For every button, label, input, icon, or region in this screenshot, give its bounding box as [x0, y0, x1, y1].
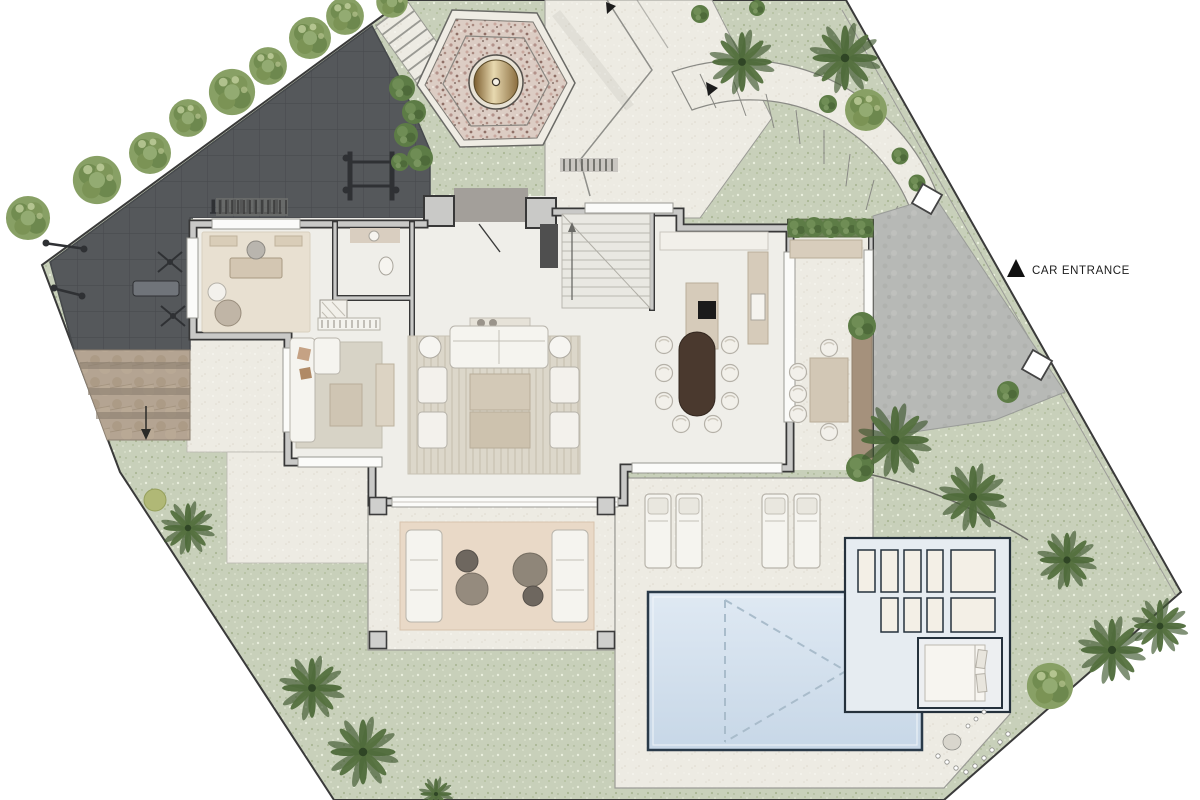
grass-tuft: [144, 489, 166, 511]
bush-icon: [391, 153, 409, 171]
round-table-small: [523, 586, 543, 606]
terrace-chair: [790, 364, 807, 381]
armchair: [550, 412, 579, 448]
house: [187, 188, 873, 507]
armchair: [550, 367, 579, 403]
bush-icon: [394, 123, 418, 147]
tree-icon: [169, 99, 207, 137]
bush-icon: [402, 100, 426, 124]
dining-chair: [656, 365, 673, 382]
tv-lounge: [290, 338, 394, 448]
outdoor-sofa-left: [406, 530, 442, 622]
outdoor-sofa-right: [552, 530, 588, 622]
kitchen-counter-north: [660, 232, 768, 250]
side-table: [549, 336, 571, 358]
cooktop: [698, 301, 716, 319]
coffee-table: [470, 374, 530, 410]
kitchen-sink: [751, 294, 765, 320]
gym-bench: [133, 281, 179, 296]
hedge-bush-icon: [854, 218, 874, 238]
low-table: [330, 384, 362, 426]
round-table-large: [456, 573, 488, 605]
site-plan: CAR ENTRANCE: [0, 0, 1200, 800]
dining-chair: [673, 416, 690, 433]
outdoor-kitchen-counter: [790, 240, 862, 258]
cabana-daybed: [925, 645, 985, 701]
round-table-large: [513, 553, 547, 587]
dining-chair: [722, 365, 739, 382]
hedge-bush-icon: [821, 218, 841, 238]
floor-plan-drawing: CAR ENTRANCE: [0, 0, 1200, 800]
west-terrace: [187, 336, 288, 452]
round-table-small: [456, 550, 478, 572]
pillow: [297, 347, 311, 361]
bush-icon: [819, 95, 837, 113]
hedge-bush-icon: [787, 218, 807, 238]
car-entrance-label: CAR ENTRANCE: [1032, 265, 1130, 277]
tree-icon: [209, 69, 255, 115]
sun-lounger: [794, 494, 820, 568]
stair-core-wall: [540, 224, 558, 268]
office: [202, 232, 310, 332]
terrace-chair: [790, 406, 807, 423]
staircase: [562, 214, 650, 308]
bush-icon: [749, 0, 765, 16]
southwest-terrace: [227, 452, 378, 563]
sun-lounger: [762, 494, 788, 568]
office-side-table: [208, 283, 226, 301]
pergola-post: [370, 498, 387, 515]
pergola-post: [598, 632, 615, 649]
office-cabinet-right: [275, 236, 302, 246]
sun-lounger: [676, 494, 702, 568]
bush-icon: [997, 381, 1019, 403]
sideboard: [376, 364, 394, 426]
office-armchair: [215, 300, 241, 326]
dining-chair: [705, 416, 722, 433]
pillow: [299, 367, 312, 380]
bush-icon: [892, 148, 909, 165]
office-desk: [230, 258, 282, 278]
pillow: [976, 650, 987, 669]
bush-icon: [848, 312, 876, 340]
toilet: [379, 257, 393, 275]
office-cabinet-left: [210, 236, 237, 246]
tree-icon: [6, 196, 50, 240]
entrance-porch-mat: [454, 188, 528, 222]
pergola-post: [598, 498, 615, 515]
dining-chair: [722, 393, 739, 410]
coffee-table: [470, 412, 530, 448]
tree-icon: [249, 47, 287, 85]
tree-icon: [1027, 663, 1073, 709]
dining-chair: [722, 337, 739, 354]
pillow: [976, 674, 987, 693]
armchair: [418, 367, 447, 403]
terrace-chair: [790, 386, 807, 403]
bathroom-sink: [369, 231, 379, 241]
outdoor-dining-table: [810, 358, 848, 422]
terrace-chair: [821, 340, 838, 357]
fountain-spout: [492, 78, 499, 85]
bench: [318, 318, 380, 330]
tree-icon: [845, 89, 887, 131]
office-chair: [247, 241, 265, 259]
bush-icon: [407, 145, 433, 171]
dining-table: [679, 332, 715, 416]
tree-icon: [73, 156, 121, 204]
hedge-bush-icon: [804, 217, 824, 237]
side-table: [419, 336, 441, 358]
spa-deck: [845, 538, 1010, 712]
pergola-post: [370, 632, 387, 649]
cabana: [918, 638, 1002, 708]
tree-icon: [289, 17, 331, 59]
dining-chair: [656, 393, 673, 410]
tree-icon: [129, 132, 171, 174]
dining-chair: [656, 337, 673, 354]
l-sofa-chaise: [314, 338, 340, 374]
armchair: [418, 412, 447, 448]
bush-icon: [389, 75, 415, 101]
terrace-chair: [821, 424, 838, 441]
bush-icon: [691, 5, 709, 23]
sun-lounger: [645, 494, 671, 568]
